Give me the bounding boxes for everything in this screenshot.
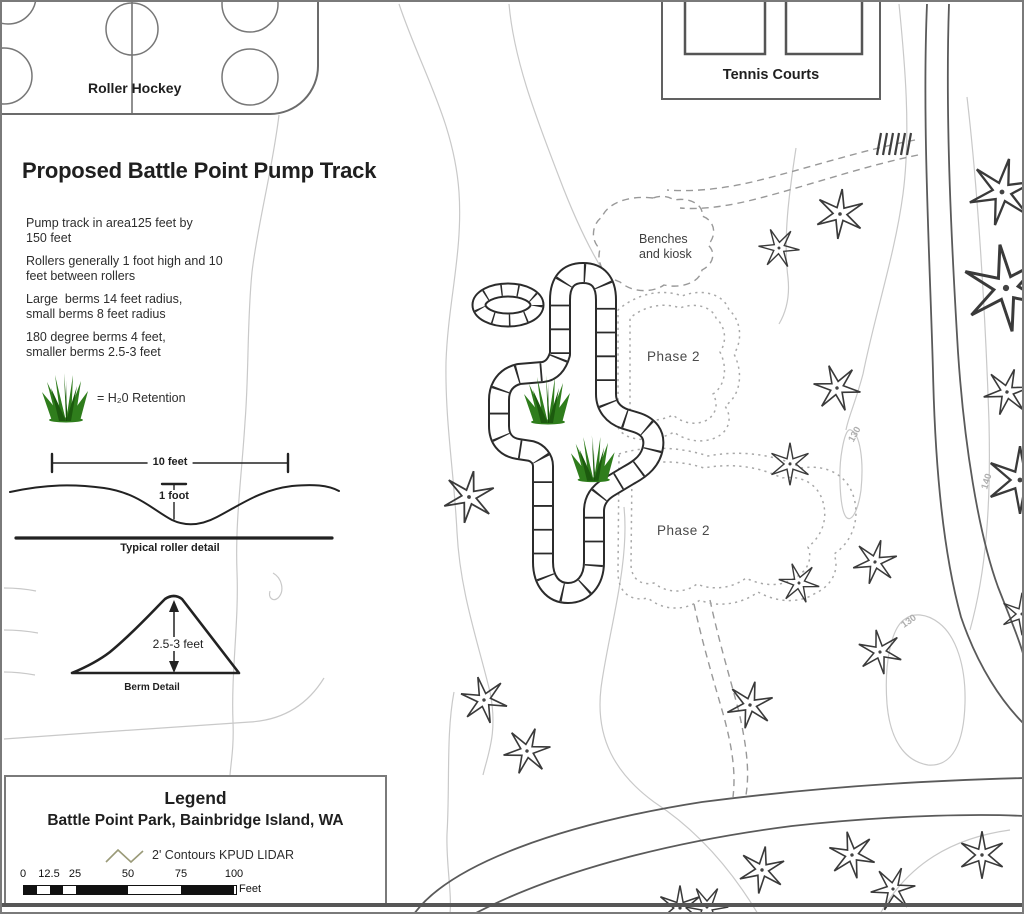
scale-tick: 100	[225, 868, 243, 880]
roller-height-dimension: 1 foot	[154, 490, 194, 502]
note-track-area: Pump track in area125 feet by 150 feet	[26, 216, 262, 247]
scale-segment	[37, 886, 50, 894]
map-bottom-border	[2, 903, 1024, 907]
scale-tick: 50	[122, 868, 134, 880]
tree-icon	[991, 446, 1024, 514]
scale-tick: 25	[69, 868, 81, 880]
tennis-enclosure	[662, 2, 880, 99]
tree-icon	[850, 535, 899, 589]
stair-mark	[889, 133, 893, 155]
tree-icon	[660, 886, 699, 914]
scale-segment	[50, 886, 63, 894]
contour-line	[509, 4, 605, 274]
tennis-courts	[662, 2, 880, 99]
scale-bar	[23, 885, 237, 895]
trees	[442, 153, 1024, 914]
tree-icon	[816, 187, 864, 241]
park-plan-map: Roller Hockey Tennis Courts Proposed Bat…	[0, 0, 1024, 914]
berm-outline	[72, 596, 239, 673]
scale-segment	[24, 886, 37, 894]
scale-tick: 75	[175, 868, 187, 880]
road-edge	[414, 778, 1024, 914]
water-retention-grass-icon	[571, 435, 615, 482]
scale-tick: 12.5	[38, 868, 59, 880]
faceoff-circle	[2, 48, 32, 104]
scale-unit-label: Feet	[239, 883, 261, 895]
berm-detail-caption: Berm Detail	[124, 682, 180, 693]
contour-line	[270, 573, 282, 600]
contour-line	[600, 507, 758, 914]
contour-line	[4, 630, 38, 633]
faceoff-circle	[2, 2, 36, 24]
scale-segment	[128, 886, 181, 894]
arrow-head-down	[169, 661, 179, 673]
practice-oval-track	[479, 290, 537, 320]
contour-loop-130	[840, 430, 862, 519]
contour-line	[399, 4, 493, 775]
arrow-head-up	[169, 600, 179, 612]
oval-inner	[479, 290, 537, 320]
tree-icon	[810, 359, 865, 418]
contour-loop-130-lower	[886, 615, 965, 765]
berm-detail-diagram	[72, 596, 239, 673]
tree-icon	[961, 831, 1002, 879]
faceoff-circle	[222, 49, 278, 105]
note-rollers: Rollers generally 1 foot high and 10 fee…	[26, 254, 262, 285]
stair-mark	[877, 133, 881, 155]
tree-icon	[827, 827, 877, 882]
contour-line	[846, 4, 907, 430]
roller-detail-caption: Typical roller detail	[120, 542, 219, 554]
water-retention-grass-icon	[42, 373, 88, 423]
benches-kiosk-label: Benches and kiosk	[639, 232, 692, 262]
stair-mark	[907, 133, 911, 155]
road	[414, 4, 1024, 914]
stair-mark	[901, 133, 905, 155]
trail-line	[694, 604, 734, 797]
contour-line	[4, 672, 35, 675]
legend-heading: Legend	[6, 788, 385, 809]
note-berm-radius: Large berms 14 feet radius, small berms …	[26, 292, 262, 323]
legend-box: Legend Battle Point Park, Bainbridge Isl…	[4, 775, 387, 906]
tree-icon	[962, 239, 1024, 336]
trail-line	[710, 600, 748, 795]
tree-icon	[458, 672, 510, 729]
note-berm-height: 180 degree berms 4 feet, smaller berms 2…	[26, 330, 262, 361]
phase2-lower-label: Phase 2	[657, 523, 710, 538]
phase2-upper-label: Phase 2	[647, 349, 700, 364]
tree-icon	[772, 556, 826, 610]
trail-line	[680, 155, 918, 209]
tree-icon	[738, 844, 785, 897]
roller-hockey-label: Roller Hockey	[88, 80, 181, 96]
scale-segment	[63, 886, 76, 894]
tree-icon	[442, 467, 496, 527]
tree-icon	[857, 626, 903, 677]
stair-mark	[883, 133, 887, 155]
roller-hockey-rink	[2, 2, 318, 114]
contour-zigzag-icon	[105, 848, 147, 865]
tennis-courts-label: Tennis Courts	[723, 67, 819, 83]
roller-width-dimension: 10 feet	[148, 456, 193, 468]
phase2-upper-outline-inner	[630, 305, 725, 423]
tree-icon	[966, 153, 1024, 231]
tree-icon	[754, 222, 804, 274]
tree-icon	[500, 722, 555, 781]
contour-line	[230, 115, 279, 775]
tree-icon	[772, 443, 809, 486]
tennis-court	[685, 2, 765, 54]
page-title: Proposed Battle Point Pump Track	[22, 158, 376, 184]
phase2-lower-outline	[618, 448, 856, 608]
legend-location: Battle Point Park, Bainbridge Island, WA	[6, 812, 385, 830]
legend-contours-label: 2' Contours KPUD LIDAR	[152, 848, 294, 862]
scale-tick: 0	[20, 868, 26, 880]
contour-line	[4, 588, 36, 591]
scale-segment	[181, 886, 234, 894]
faceoff-circle	[222, 2, 278, 32]
tennis-court	[786, 2, 862, 54]
water-retention-label: = H₂0 Retention	[97, 391, 186, 405]
berm-height-dimension: 2.5-3 feet	[148, 637, 209, 651]
scale-segment	[76, 886, 128, 894]
